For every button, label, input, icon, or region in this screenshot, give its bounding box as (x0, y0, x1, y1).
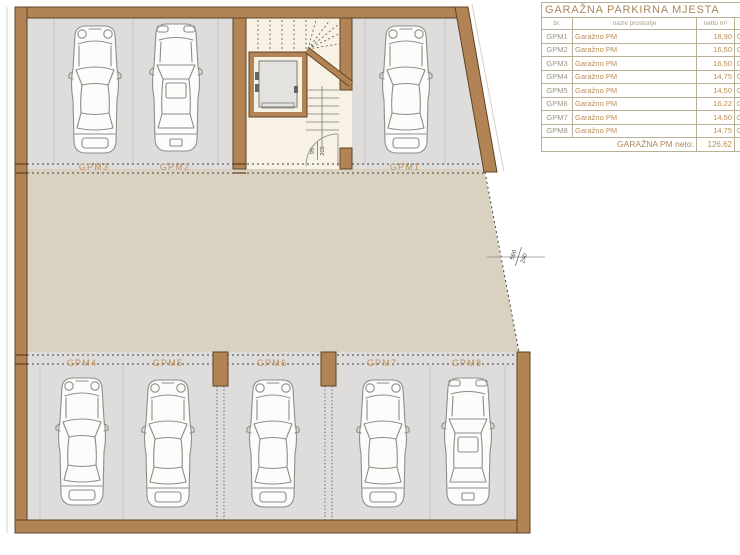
row-koef: 0,50 (735, 57, 740, 71)
elevator-car (259, 61, 297, 107)
row-name: Garažno PM (573, 70, 697, 84)
row-name: Garažno PM (573, 43, 697, 57)
row-area: 18,90 (697, 30, 735, 44)
table-row: GPM3 Garažno PM 16,50 0,50 (542, 57, 740, 71)
row-id: GPM6 (542, 97, 573, 111)
row-area: 14,75 (697, 70, 735, 84)
space-label-gpm3: GPM3 (79, 162, 109, 172)
footer-koef-empty (735, 138, 740, 152)
door-width-text: 95 (310, 148, 316, 154)
space-label-gpm8: GPM8 (452, 358, 482, 368)
table-row: GPM7 Garažno PM 14,50 0,50 (542, 111, 740, 125)
col-header-koef: koef (735, 18, 740, 30)
pillar-2 (321, 352, 336, 386)
table-footer-row: GARAŽNA PM neto: 126.62 (542, 138, 740, 152)
row-id: GPM2 (542, 43, 573, 57)
car-gpm7 (357, 380, 409, 507)
car-gpm2 (150, 24, 202, 151)
space-label-gpm2: GPM2 (160, 162, 190, 172)
space-label-gpm7: GPM7 (367, 358, 397, 368)
row-koef: 0,50 (735, 43, 740, 57)
row-koef: 0,50 (735, 111, 740, 125)
row-area: 16,50 (697, 57, 735, 71)
footer-total: 126.62 (697, 138, 735, 152)
row-id: GPM8 (542, 124, 573, 138)
stair-left-wall (233, 18, 246, 169)
car-gpm1 (380, 26, 432, 153)
table-row: GPM2 Garažno PM 16,50 0,50 (542, 43, 740, 57)
door-height-text: 205 (320, 146, 326, 155)
elevator-rail-left2 (255, 84, 259, 92)
stair-door-stub-wall (340, 148, 352, 169)
parking-table: GARAŽNA PARKIRNA MJESTA br. naziv prosto… (541, 2, 740, 152)
row-name: Garažno PM (573, 84, 697, 98)
drive-aisle-floor (27, 169, 519, 352)
table-title: GARAŽNA PARKIRNA MJESTA (541, 2, 740, 18)
space-label-gpm4: GPM4 (67, 358, 97, 368)
pillar-1 (213, 352, 228, 386)
col-header-br: br. (542, 18, 573, 30)
car-gpm4 (56, 378, 108, 505)
space-label-gpm5: GPM5 (153, 358, 183, 368)
row-koef: 0,50 (735, 70, 740, 84)
row-id: GPM1 (542, 30, 573, 44)
col-header-naziv: naziv prostorije (573, 18, 697, 30)
car-gpm6 (247, 380, 299, 507)
row-koef: 0,50 (735, 124, 740, 138)
row-name: Garažno PM (573, 30, 697, 44)
table-row: GPM5 Garažno PM 14,50 0,50 (542, 84, 740, 98)
row-name: Garažno PM (573, 57, 697, 71)
elevator (249, 52, 307, 117)
top-wall (15, 7, 465, 18)
row-id: GPM4 (542, 70, 573, 84)
space-label-gpm1: GPM1 (390, 162, 420, 172)
row-id: GPM7 (542, 111, 573, 125)
car-gpm8 (442, 378, 494, 505)
row-area: 16,50 (697, 43, 735, 57)
elevator-rail-right (294, 86, 298, 93)
row-area: 14,75 (697, 124, 735, 138)
row-id: GPM5 (542, 84, 573, 98)
col-header-netto: netto m² (697, 18, 735, 30)
row-id: GPM3 (542, 57, 573, 71)
table-row: GPM4 Garažno PM 14,75 0,50 (542, 70, 740, 84)
row-koef: 0,50 (735, 84, 740, 98)
footer-label: GARAŽNA PM neto: (542, 138, 697, 152)
elevator-rail-left (255, 72, 259, 80)
row-name: Garažno PM (573, 124, 697, 138)
parking-table-grid: br. naziv prostorije netto m² koef GPM1 … (541, 17, 740, 152)
car-gpm5 (142, 380, 194, 507)
row-area: 16,22 (697, 97, 735, 111)
table-row: GPM8 Garažno PM 14,75 0,50 (542, 124, 740, 138)
left-wall (15, 7, 27, 533)
row-name: Garažno PM (573, 97, 697, 111)
row-area: 14,50 (697, 111, 735, 125)
row-koef: 0,50 (735, 30, 740, 44)
floor-plan-screenshot: { "colors": { "wall": "#b28455", "wall_e… (0, 0, 740, 550)
table-row: GPM1 Garažno PM 18,90 0,50 (542, 30, 740, 44)
table-header-row: br. naziv prostorije netto m² koef (542, 18, 740, 30)
car-gpm3 (69, 26, 121, 153)
opening-height-text: 240 (520, 252, 529, 264)
row-koef: 0,50 (735, 97, 740, 111)
row-name: Garažno PM (573, 111, 697, 125)
space-label-gpm6: GPM6 (257, 358, 287, 368)
bottom-wall (15, 520, 530, 533)
row-area: 14,50 (697, 84, 735, 98)
bottom-right-wall (517, 352, 530, 533)
table-row: GPM6 Garažno PM 16,22 0,50 (542, 97, 740, 111)
